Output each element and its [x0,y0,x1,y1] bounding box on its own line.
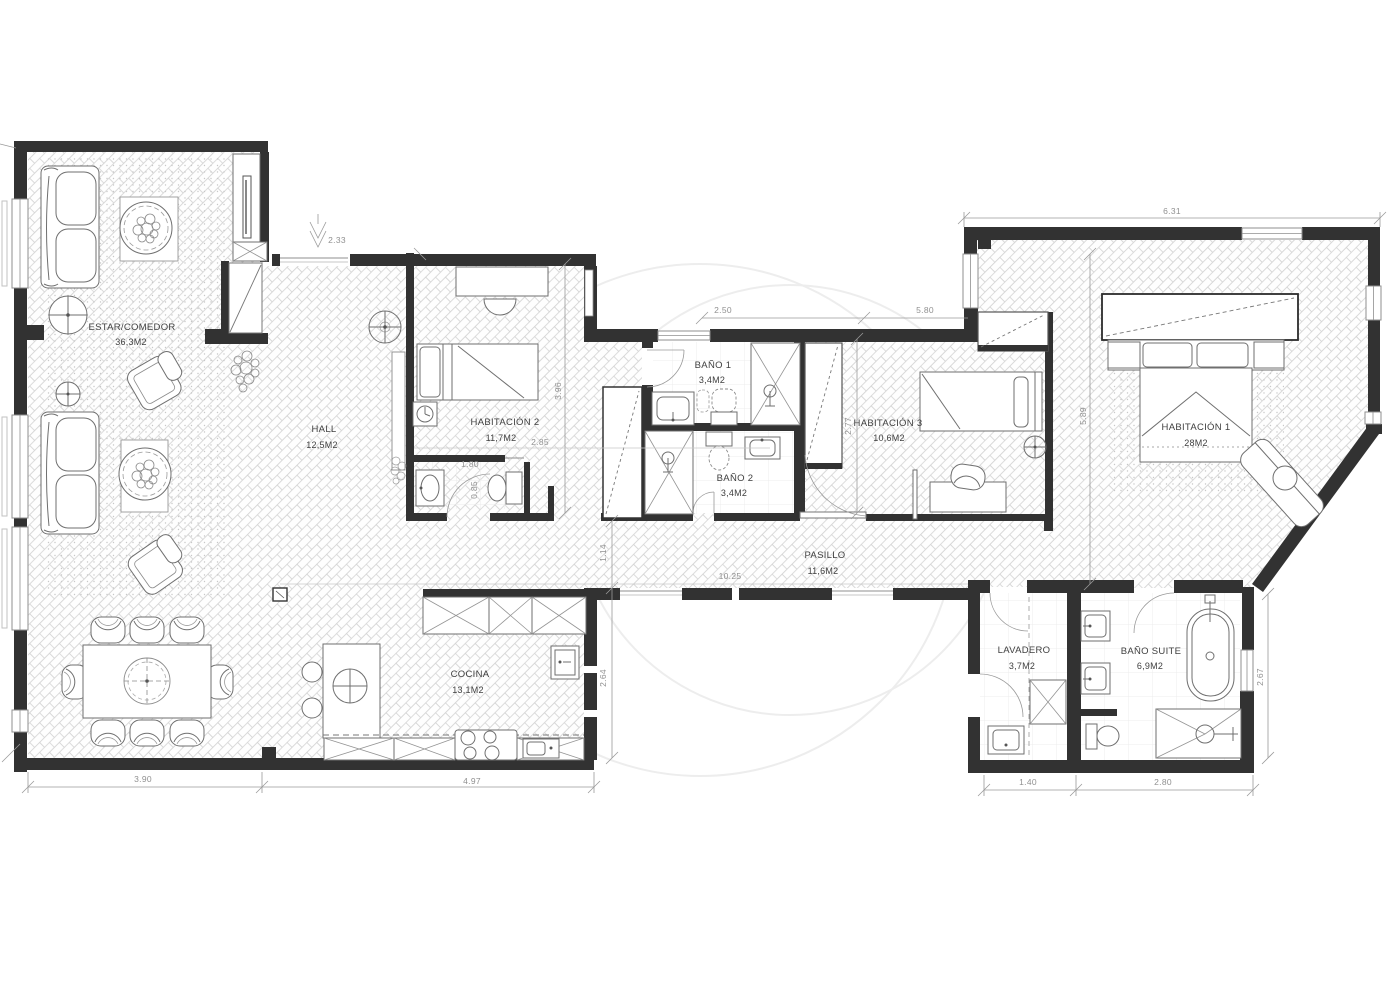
svg-text:4.97: 4.97 [463,776,481,786]
svg-text:HALL: HALL [312,424,337,435]
svg-text:12,5M2: 12,5M2 [306,440,338,450]
svg-text:COCINA: COCINA [451,669,490,680]
svg-text:2.85: 2.85 [531,437,549,447]
svg-text:5.89: 5.89 [1078,407,1088,425]
svg-text:1.80: 1.80 [461,459,479,469]
svg-text:2.33: 2.33 [328,235,346,245]
svg-text:PASILLO: PASILLO [805,550,846,561]
svg-text:2.64: 2.64 [598,669,608,687]
svg-text:3.90: 3.90 [134,774,152,784]
svg-text:ESTAR/COMEDOR: ESTAR/COMEDOR [88,322,175,333]
svg-text:BAÑO 2: BAÑO 2 [717,473,754,484]
svg-text:BAÑO SUITE: BAÑO SUITE [1121,646,1182,657]
svg-text:6,9M2: 6,9M2 [1137,661,1163,671]
svg-text:HABITACIÓN 1: HABITACIÓN 1 [1162,422,1231,433]
svg-text:36,3M2: 36,3M2 [115,337,147,347]
svg-text:1.14: 1.14 [598,544,608,562]
svg-text:BAÑO 1: BAÑO 1 [695,360,732,371]
svg-text:0.85: 0.85 [469,481,479,499]
svg-text:HABITACIÓN 2: HABITACIÓN 2 [471,417,540,428]
svg-text:1.40: 1.40 [1019,777,1037,787]
svg-text:2.67: 2.67 [1255,668,1265,686]
svg-text:2.77: 2.77 [843,417,853,435]
svg-text:LAVADERO: LAVADERO [998,645,1051,656]
svg-text:10.25: 10.25 [719,571,742,581]
svg-text:3.96: 3.96 [553,382,563,400]
svg-text:13,1M2: 13,1M2 [452,685,484,695]
svg-text:11,7M2: 11,7M2 [486,433,517,443]
svg-text:5.80: 5.80 [916,305,934,315]
svg-text:HABITACIÓN 3: HABITACIÓN 3 [854,418,923,429]
svg-text:3,4M2: 3,4M2 [721,488,747,498]
svg-text:6.31: 6.31 [1163,206,1181,216]
svg-text:11,6M2: 11,6M2 [808,566,839,576]
svg-text:2.50: 2.50 [714,305,732,315]
svg-text:3,7M2: 3,7M2 [1009,661,1035,671]
svg-text:28M2: 28M2 [1184,438,1208,448]
svg-text:3,4M2: 3,4M2 [699,375,725,385]
svg-text:10,6M2: 10,6M2 [873,433,905,443]
svg-text:2.80: 2.80 [1154,777,1172,787]
